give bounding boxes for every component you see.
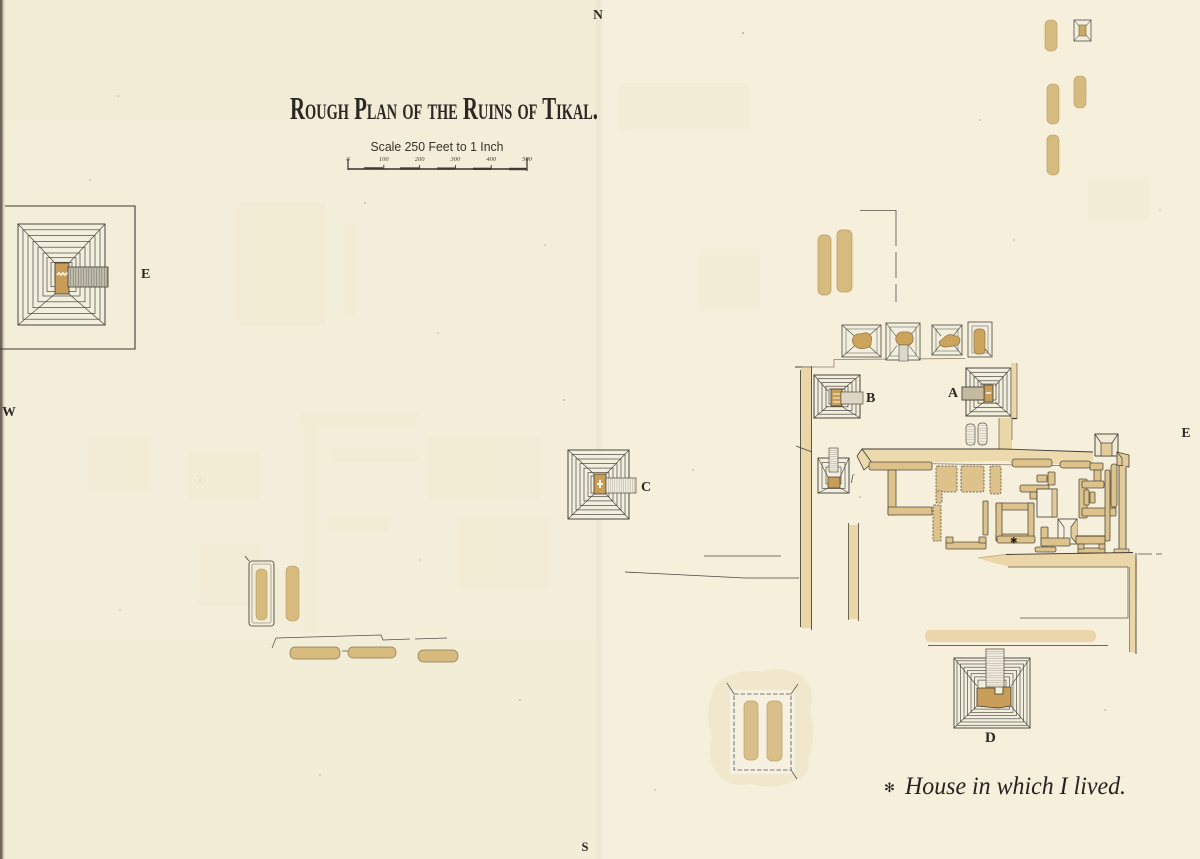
svg-text:N: N (593, 7, 603, 22)
svg-text:E: E (1181, 425, 1190, 440)
svg-text:400: 400 (486, 156, 497, 163)
svg-text:Scale 250 Feet to 1 Inch: Scale 250 Feet to 1 Inch (371, 140, 504, 154)
svg-text:Rough Plan of the Ruins of Tik: Rough Plan of the Ruins of Tikal. (290, 90, 598, 126)
svg-text:E: E (141, 267, 150, 282)
svg-text:✱: ✱ (1010, 536, 1018, 546)
svg-text:500: 500 (522, 156, 533, 163)
svg-text:W: W (2, 404, 16, 419)
svg-text:B: B (866, 391, 875, 406)
svg-text:House in which I lived.: House in which I lived. (904, 773, 1126, 800)
svg-text:A: A (948, 386, 959, 401)
svg-text:200: 200 (415, 156, 426, 163)
svg-text:C: C (641, 480, 651, 495)
svg-text:D: D (985, 730, 996, 746)
svg-text:S: S (582, 840, 589, 854)
svg-text:100: 100 (379, 156, 390, 163)
svg-text:300: 300 (450, 156, 462, 163)
svg-text:✻: ✻ (884, 780, 895, 795)
